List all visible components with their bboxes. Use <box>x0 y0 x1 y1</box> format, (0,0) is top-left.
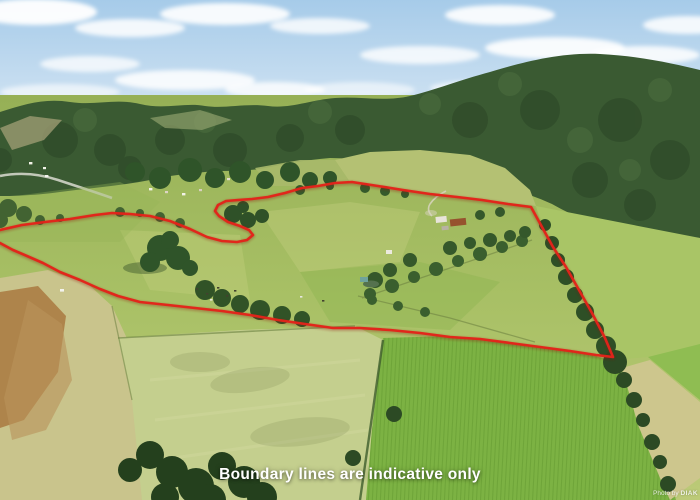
shed-roof <box>441 226 448 231</box>
pale-strip-tree <box>345 450 361 466</box>
trailer <box>60 289 64 292</box>
white-shed <box>386 250 392 254</box>
aerial-photo-canvas <box>0 0 700 500</box>
farmhouse-roof <box>435 216 447 223</box>
aerial-photo: Boundary lines are indicative only Photo… <box>0 0 700 500</box>
lone-maize-tree <box>386 406 402 422</box>
green-shed <box>360 277 368 282</box>
vehicle <box>45 175 48 177</box>
